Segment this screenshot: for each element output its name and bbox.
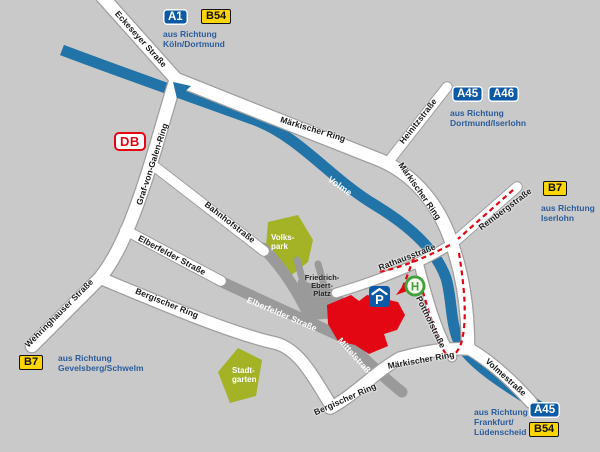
sign-a45-top: A45 xyxy=(452,86,483,102)
sign-a46: A46 xyxy=(488,86,519,102)
sign-a1: A1 xyxy=(163,9,188,25)
db-logo: DB xyxy=(114,132,146,151)
sign-b54-top: B54 xyxy=(201,9,231,24)
direction-dortmund-iserlohn: aus RichtungDortmund/Iserlohn xyxy=(450,108,526,128)
park-label-volkspark: Volks- park xyxy=(271,233,294,251)
place-label-friedrich-ebert-platz: Friedrich- Ebert- Platz xyxy=(305,274,340,298)
sign-b54-bottom: B54 xyxy=(529,422,559,437)
svg-text:P: P xyxy=(375,292,384,307)
direction-koeln-dortmund: aus RichtungKöln/Dortmund xyxy=(163,29,225,49)
direction-frankfurt-luedenscheid: aus RichtungFrankfurt/Lüdenscheid xyxy=(474,407,528,437)
park-label-stadtgarten: Stadt- garten xyxy=(232,366,256,384)
city-map: Eckeseyer Straße Märkischer Ring Heinitz… xyxy=(0,0,600,452)
sign-b7-right: B7 xyxy=(543,181,567,196)
direction-gevelsberg-schwelm: aus RichtungGevelsberg/Schwelm xyxy=(58,353,144,373)
sign-b7-left: B7 xyxy=(19,355,43,370)
svg-text:H: H xyxy=(411,281,419,293)
direction-iserlohn: aus RichtungIserlohn xyxy=(541,203,595,223)
sign-a45-bottom: A45 xyxy=(529,402,560,418)
